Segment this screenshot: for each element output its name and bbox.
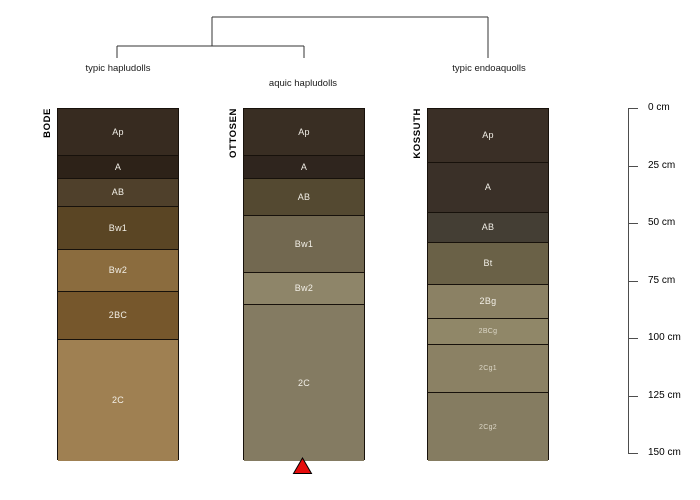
profile-id-label: BODE <box>42 108 53 138</box>
depth-axis-tick-label: 125 cm <box>648 390 681 402</box>
depth-axis-tick-label: 150 cm <box>648 447 681 459</box>
depth-axis-tick <box>628 223 638 224</box>
depth-axis-tick <box>628 338 638 339</box>
horizon-label: Ap <box>298 128 310 137</box>
horizon-label: AB <box>482 223 495 232</box>
profile-id-label: KOSSUTH <box>412 108 423 159</box>
horizon-layer: A <box>244 155 364 178</box>
horizon-layer: 2Cg2 <box>428 392 548 461</box>
horizon-layer: Bw2 <box>244 272 364 304</box>
horizon-layer: 2BC <box>58 291 178 339</box>
horizon-label: Bt <box>483 259 492 268</box>
depth-axis-tick-label: 25 cm <box>648 160 675 172</box>
red-triangle-marker <box>291 457 315 476</box>
dendrogram-leaf-label: typic endoaquolls <box>414 63 564 74</box>
depth-axis-tick-label: 0 cm <box>648 102 670 114</box>
dendrogram-leaf-label: typic hapludolls <box>43 63 193 74</box>
horizon-layer: Bw2 <box>58 249 178 291</box>
depth-axis-tick <box>628 396 638 397</box>
horizon-layer: 2Bg <box>428 284 548 318</box>
horizon-label: 2C <box>298 379 310 388</box>
profile-column-kossuth: ApAABBt2Bg2BCg2Cg12Cg2 <box>427 108 549 460</box>
horizon-layer: Ap <box>428 109 548 162</box>
profile-id-label: OTTOSEN <box>228 108 239 158</box>
depth-axis-tick <box>628 281 638 282</box>
horizon-layer: A <box>428 162 548 212</box>
depth-axis-tick <box>628 108 638 109</box>
depth-axis-tick-label: 100 cm <box>648 332 681 344</box>
horizon-label: 2BC <box>109 311 127 320</box>
soil-profile-plot: typic hapludolls aquic hapludolls typic … <box>0 0 700 500</box>
horizon-layer: Bw1 <box>58 206 178 249</box>
horizon-layer: 2C <box>58 339 178 461</box>
depth-axis-tick-label: 75 cm <box>648 275 675 287</box>
horizon-label: 2Bg <box>480 297 497 306</box>
horizon-label: Ap <box>482 131 494 140</box>
horizon-layer: AB <box>58 178 178 206</box>
horizon-layer: Ap <box>58 109 178 155</box>
horizon-label: 2C <box>112 396 124 405</box>
horizon-label: A <box>115 163 121 172</box>
horizon-label: Bw1 <box>109 224 127 233</box>
horizon-layer: 2BCg <box>428 318 548 344</box>
horizon-layer: Bw1 <box>244 215 364 272</box>
horizon-layer: 2Cg1 <box>428 344 548 392</box>
horizon-layer: AB <box>244 178 364 215</box>
horizon-layer: Bt <box>428 242 548 284</box>
profile-column-bode: ApAABBw1Bw22BC2C <box>57 108 179 460</box>
horizon-label: Ap <box>112 128 124 137</box>
horizon-label: Bw2 <box>295 284 313 293</box>
horizon-label: A <box>301 163 307 172</box>
horizon-layer: 2C <box>244 304 364 461</box>
horizon-layer: Ap <box>244 109 364 155</box>
horizon-label: 2Cg2 <box>479 424 497 431</box>
depth-axis-tick <box>628 453 638 454</box>
depth-axis-tick <box>628 166 638 167</box>
horizon-layer: A <box>58 155 178 178</box>
horizon-label: 2Cg1 <box>479 365 497 372</box>
horizon-label: Bw1 <box>295 240 313 249</box>
profile-column-ottosen: ApAABBw1Bw22C <box>243 108 365 460</box>
horizon-label: AB <box>112 188 125 197</box>
dendrogram-leaf-label: aquic hapludolls <box>228 78 378 89</box>
horizon-label: AB <box>298 193 311 202</box>
horizon-layer: AB <box>428 212 548 242</box>
depth-axis-tick-label: 50 cm <box>648 217 675 229</box>
horizon-label: A <box>485 183 491 192</box>
horizon-label: 2BCg <box>479 328 498 335</box>
horizon-label: Bw2 <box>109 266 127 275</box>
